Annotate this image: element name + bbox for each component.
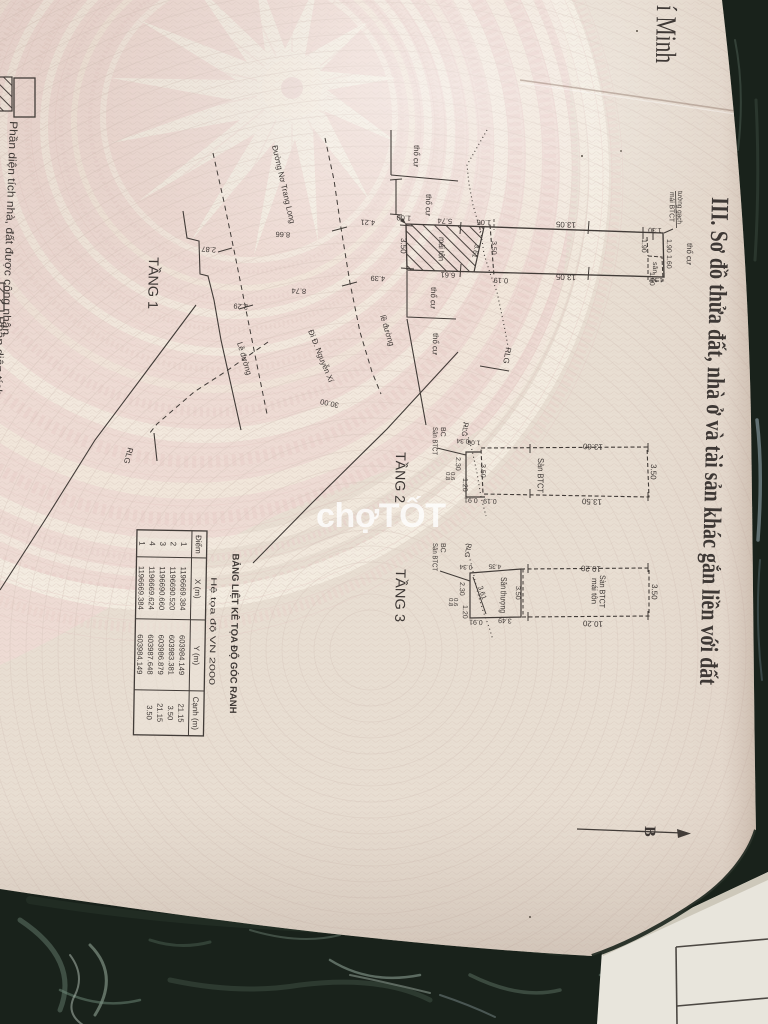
svg-text:603983.381: 603983.381 xyxy=(166,635,176,675)
svg-text:BC: BC xyxy=(439,427,446,437)
svg-text:4: 4 xyxy=(148,541,157,546)
svg-text:1.06: 1.06 xyxy=(467,438,480,445)
svg-text:Sàn BTCT: Sàn BTCT xyxy=(535,458,546,493)
svg-text:603987.648: 603987.648 xyxy=(145,634,155,674)
svg-text:8.74: 8.74 xyxy=(291,286,306,296)
svg-text:10.20: 10.20 xyxy=(580,564,601,574)
svg-text:0.6: 0.6 xyxy=(449,472,455,481)
svg-text:mái tôn: mái tôn xyxy=(590,578,599,604)
svg-text:1.20: 1.20 xyxy=(461,478,468,492)
svg-text:BC: BC xyxy=(439,543,446,553)
svg-text:13.05: 13.05 xyxy=(555,220,576,230)
svg-text:603984.149: 603984.149 xyxy=(135,634,145,674)
svg-text:1196690.520: 1196690.520 xyxy=(168,566,178,610)
svg-text:21.15: 21.15 xyxy=(155,703,164,722)
svg-text:13.60: 13.60 xyxy=(582,442,603,452)
svg-text:3.50: 3.50 xyxy=(649,464,658,480)
svg-text:chợTỐT: chợTỐT xyxy=(316,496,446,535)
svg-text:0.91: 0.91 xyxy=(464,496,478,503)
svg-text:8.66: 8.66 xyxy=(275,230,290,240)
svg-text:3.50: 3.50 xyxy=(650,584,659,600)
svg-text:3.50: 3.50 xyxy=(479,464,486,478)
svg-text:3.50: 3.50 xyxy=(166,705,175,720)
svg-text:Sân thượng: Sân thượng xyxy=(498,577,509,613)
svg-text:1196690.660: 1196690.660 xyxy=(157,566,167,610)
svg-text:1.60: 1.60 xyxy=(665,255,672,269)
svg-text:TẦNG 3: TẦNG 3 xyxy=(392,569,409,622)
svg-text:mái BTCT: mái BTCT xyxy=(667,192,675,223)
svg-text:0.34: 0.34 xyxy=(456,437,469,444)
svg-text:0.34: 0.34 xyxy=(459,563,472,570)
svg-text:3.50: 3.50 xyxy=(490,241,497,255)
svg-text:0.91: 0.91 xyxy=(469,618,483,625)
svg-text:13.05: 13.05 xyxy=(555,272,576,282)
svg-text:1196669.384: 1196669.384 xyxy=(136,566,146,610)
svg-text:3.50: 3.50 xyxy=(514,586,521,600)
svg-text:21.15: 21.15 xyxy=(176,703,185,722)
svg-text:1.90: 1.90 xyxy=(640,239,647,253)
svg-text:3.50: 3.50 xyxy=(145,705,154,720)
svg-text:3.49: 3.49 xyxy=(498,616,512,623)
svg-text:1196669.624: 1196669.624 xyxy=(147,566,157,610)
svg-text:1.20: 1.20 xyxy=(461,605,468,619)
svg-text:Điểm: Điểm xyxy=(194,535,203,554)
svg-text:6.61: 6.61 xyxy=(440,270,455,280)
svg-text:thổ cư: thổ cư xyxy=(424,194,433,217)
svg-text:3.50: 3.50 xyxy=(399,238,408,254)
svg-text:1.30: 1.30 xyxy=(650,276,663,282)
svg-text:thổ cư: thổ cư xyxy=(429,287,438,310)
svg-text:1.06: 1.06 xyxy=(476,218,491,228)
svg-text:3: 3 xyxy=(158,541,167,546)
svg-text:Sân BTCT: Sân BTCT xyxy=(431,427,438,456)
svg-text:Y (m): Y (m) xyxy=(192,646,201,666)
svg-text:Hệ tọa độ VN 2000: Hệ tọa độ VN 2000 xyxy=(207,577,218,686)
svg-text:1: 1 xyxy=(137,541,146,546)
svg-text:1.30: 1.30 xyxy=(648,226,662,233)
svg-text:Cạnh (m): Cạnh (m) xyxy=(191,697,201,731)
svg-text:5.74: 5.74 xyxy=(437,216,452,226)
svg-text:thổ cư: thổ cư xyxy=(431,333,440,356)
svg-text:13.50: 13.50 xyxy=(581,497,602,507)
svg-text:2.30: 2.30 xyxy=(454,457,461,471)
svg-text:thổ cư: thổ cư xyxy=(685,243,694,266)
svg-text:B: B xyxy=(641,826,658,837)
svg-text:0.19: 0.19 xyxy=(493,276,508,286)
svg-text:thổ cư: thổ cư xyxy=(412,145,421,168)
svg-text:2.87: 2.87 xyxy=(201,244,216,254)
svg-text:603984.149: 603984.149 xyxy=(177,635,187,675)
svg-text:2.29: 2.29 xyxy=(233,301,248,311)
svg-text:4.39: 4.39 xyxy=(370,274,385,284)
svg-text:Sân BTCT: Sân BTCT xyxy=(431,543,438,572)
svg-text:tường gạch: tường gạch xyxy=(675,191,683,224)
svg-text:1196669.384: 1196669.384 xyxy=(178,567,188,611)
svg-text:TẦNG 1: TẦNG 1 xyxy=(145,257,162,309)
svg-text:1.90: 1.90 xyxy=(665,239,672,253)
svg-text:4.35: 4.35 xyxy=(488,562,501,569)
svg-text:1.00: 1.00 xyxy=(396,213,411,223)
svg-text:1: 1 xyxy=(179,542,188,547)
svg-text:2.30: 2.30 xyxy=(458,582,465,596)
svg-text:603986.879: 603986.879 xyxy=(156,635,166,675)
svg-text:mái tôn: mái tôn xyxy=(437,237,447,261)
svg-text:í Minh: í Minh xyxy=(649,5,682,64)
svg-text:TẦNG 2: TẦNG 2 xyxy=(392,452,409,503)
svg-text:0.6: 0.6 xyxy=(452,598,458,607)
svg-text:X (m): X (m) xyxy=(193,579,202,599)
svg-text:0.19: 0.19 xyxy=(483,497,497,504)
svg-text:2: 2 xyxy=(169,542,178,547)
svg-text:4.21: 4.21 xyxy=(360,218,375,228)
svg-text:10.20: 10.20 xyxy=(582,619,603,629)
